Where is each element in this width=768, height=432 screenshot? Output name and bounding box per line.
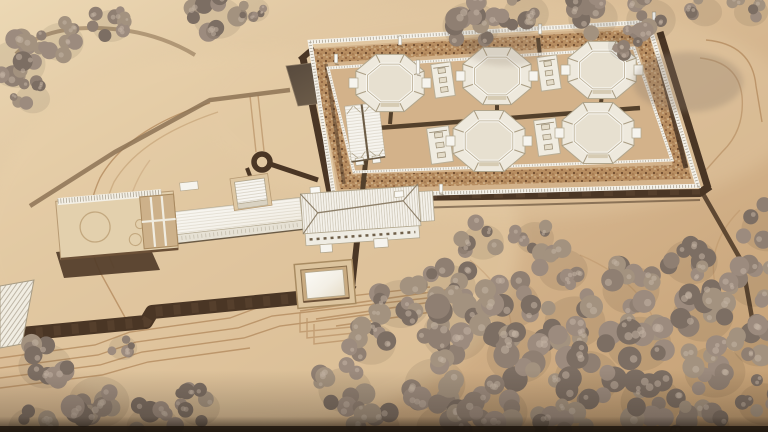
frame-edge	[0, 426, 768, 432]
architectural-model-photo	[0, 0, 768, 432]
courtyard-building	[294, 260, 356, 309]
utility-platform	[55, 188, 178, 259]
bottom-vignette	[0, 370, 768, 432]
unit-pad	[431, 62, 456, 98]
tree-shadow	[633, 52, 743, 112]
unit-pad	[537, 55, 562, 91]
gatehouse-building	[230, 174, 272, 211]
model-scene	[0, 0, 768, 432]
small-white-pad	[180, 181, 199, 191]
